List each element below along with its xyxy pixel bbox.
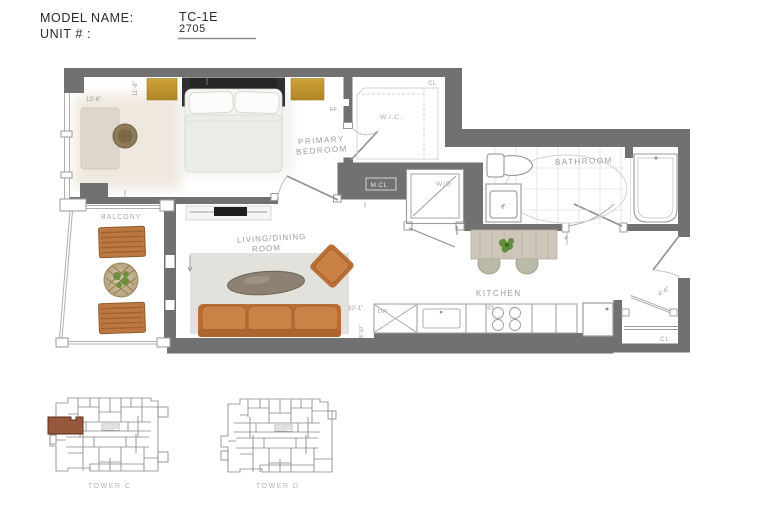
svg-text:W.I.C.: W.I.C. <box>380 114 403 121</box>
svg-text:8'-10": 8'-10" <box>359 325 365 338</box>
svg-text:10'-1": 10'-1" <box>348 306 363 312</box>
svg-text:W/D: W/D <box>436 181 452 188</box>
svg-text:MODEL NAME:: MODEL NAME: <box>40 11 134 25</box>
svg-text:13'-6": 13'-6" <box>86 97 101 103</box>
svg-text:11'-8": 11'-8" <box>133 81 139 96</box>
svg-text:CL: CL <box>428 81 437 87</box>
svg-text:EF: EF <box>330 107 338 113</box>
svg-text:UNIT # :: UNIT # : <box>40 27 91 41</box>
svg-text:4': 4' <box>564 236 568 242</box>
svg-text:TC-1E: TC-1E <box>179 10 218 24</box>
svg-text:KITCHEN: KITCHEN <box>476 289 522 298</box>
svg-text:BALCONY: BALCONY <box>101 214 141 221</box>
svg-text:TOWER C: TOWER C <box>88 483 131 490</box>
svg-text:DW: DW <box>378 309 388 315</box>
svg-text:2705: 2705 <box>179 23 206 35</box>
svg-text:BATHROOM: BATHROOM <box>555 156 613 167</box>
svg-text:M.CL: M.CL <box>371 182 388 189</box>
svg-text:TOWER D: TOWER D <box>256 483 299 490</box>
svg-text:4'-6": 4'-6" <box>658 286 671 297</box>
svg-text:LIVING/DINING: LIVING/DINING <box>237 232 307 245</box>
svg-text:CL: CL <box>660 336 670 343</box>
svg-text:ROOM: ROOM <box>252 243 281 253</box>
